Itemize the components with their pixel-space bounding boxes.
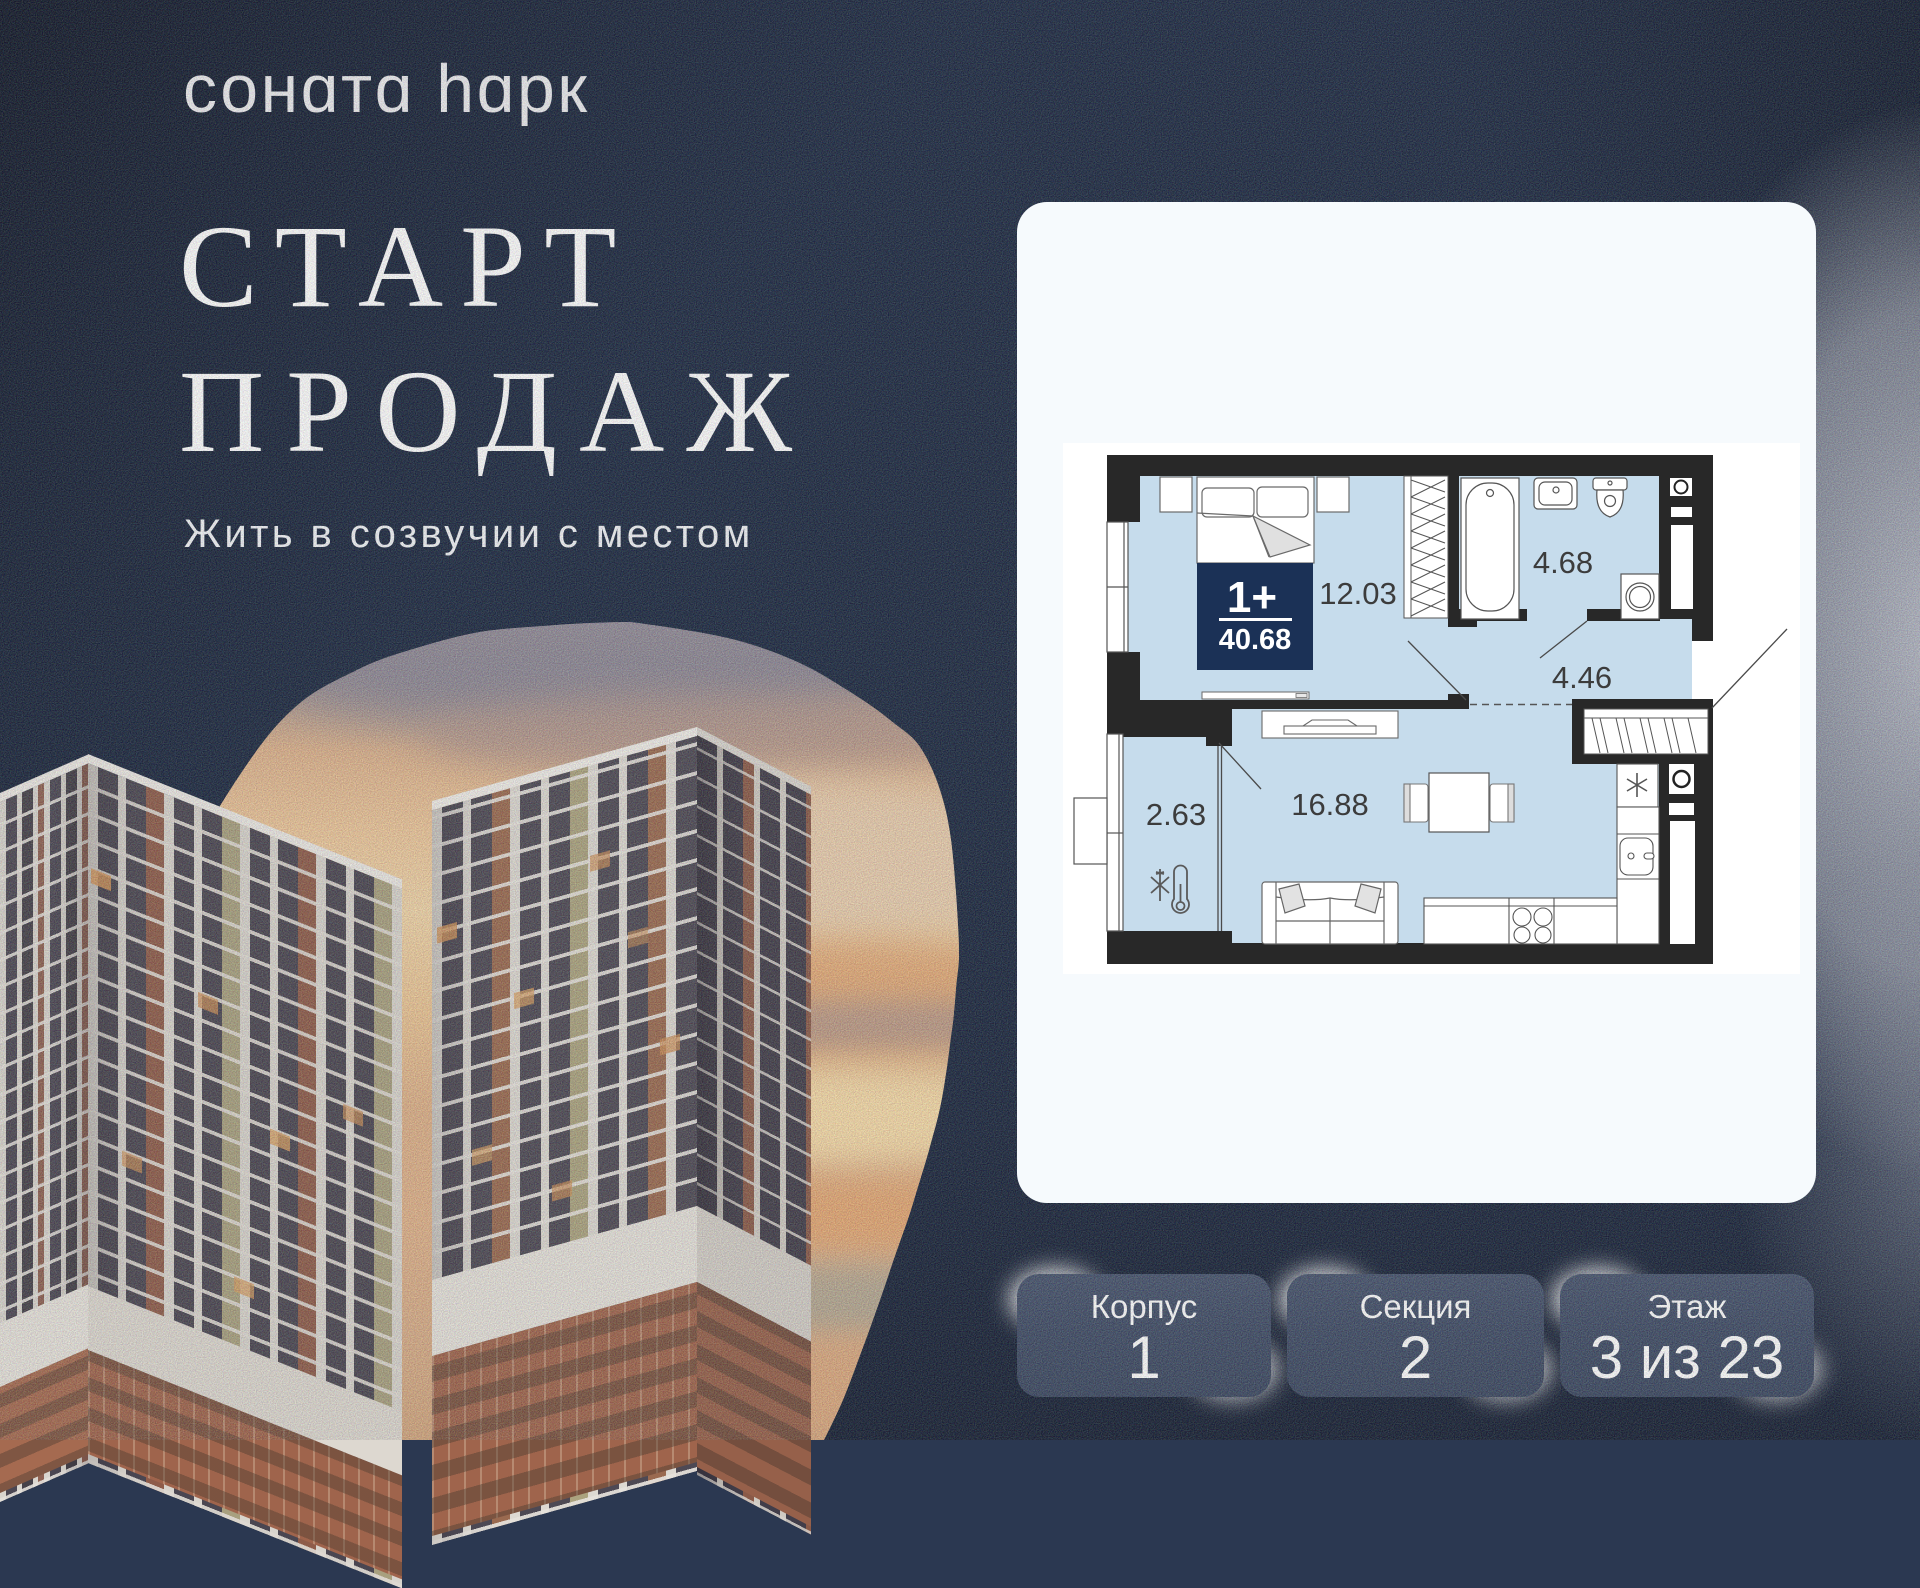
svg-text:40.68: 40.68 [1219,624,1292,656]
svg-text:1+: 1+ [1227,573,1277,622]
svg-text:2.63: 2.63 [1146,797,1206,832]
svg-text:4.46: 4.46 [1552,660,1612,695]
svg-text:4.68: 4.68 [1533,545,1593,580]
svg-text:12.03: 12.03 [1319,576,1397,611]
svg-text:16.88: 16.88 [1291,787,1369,822]
